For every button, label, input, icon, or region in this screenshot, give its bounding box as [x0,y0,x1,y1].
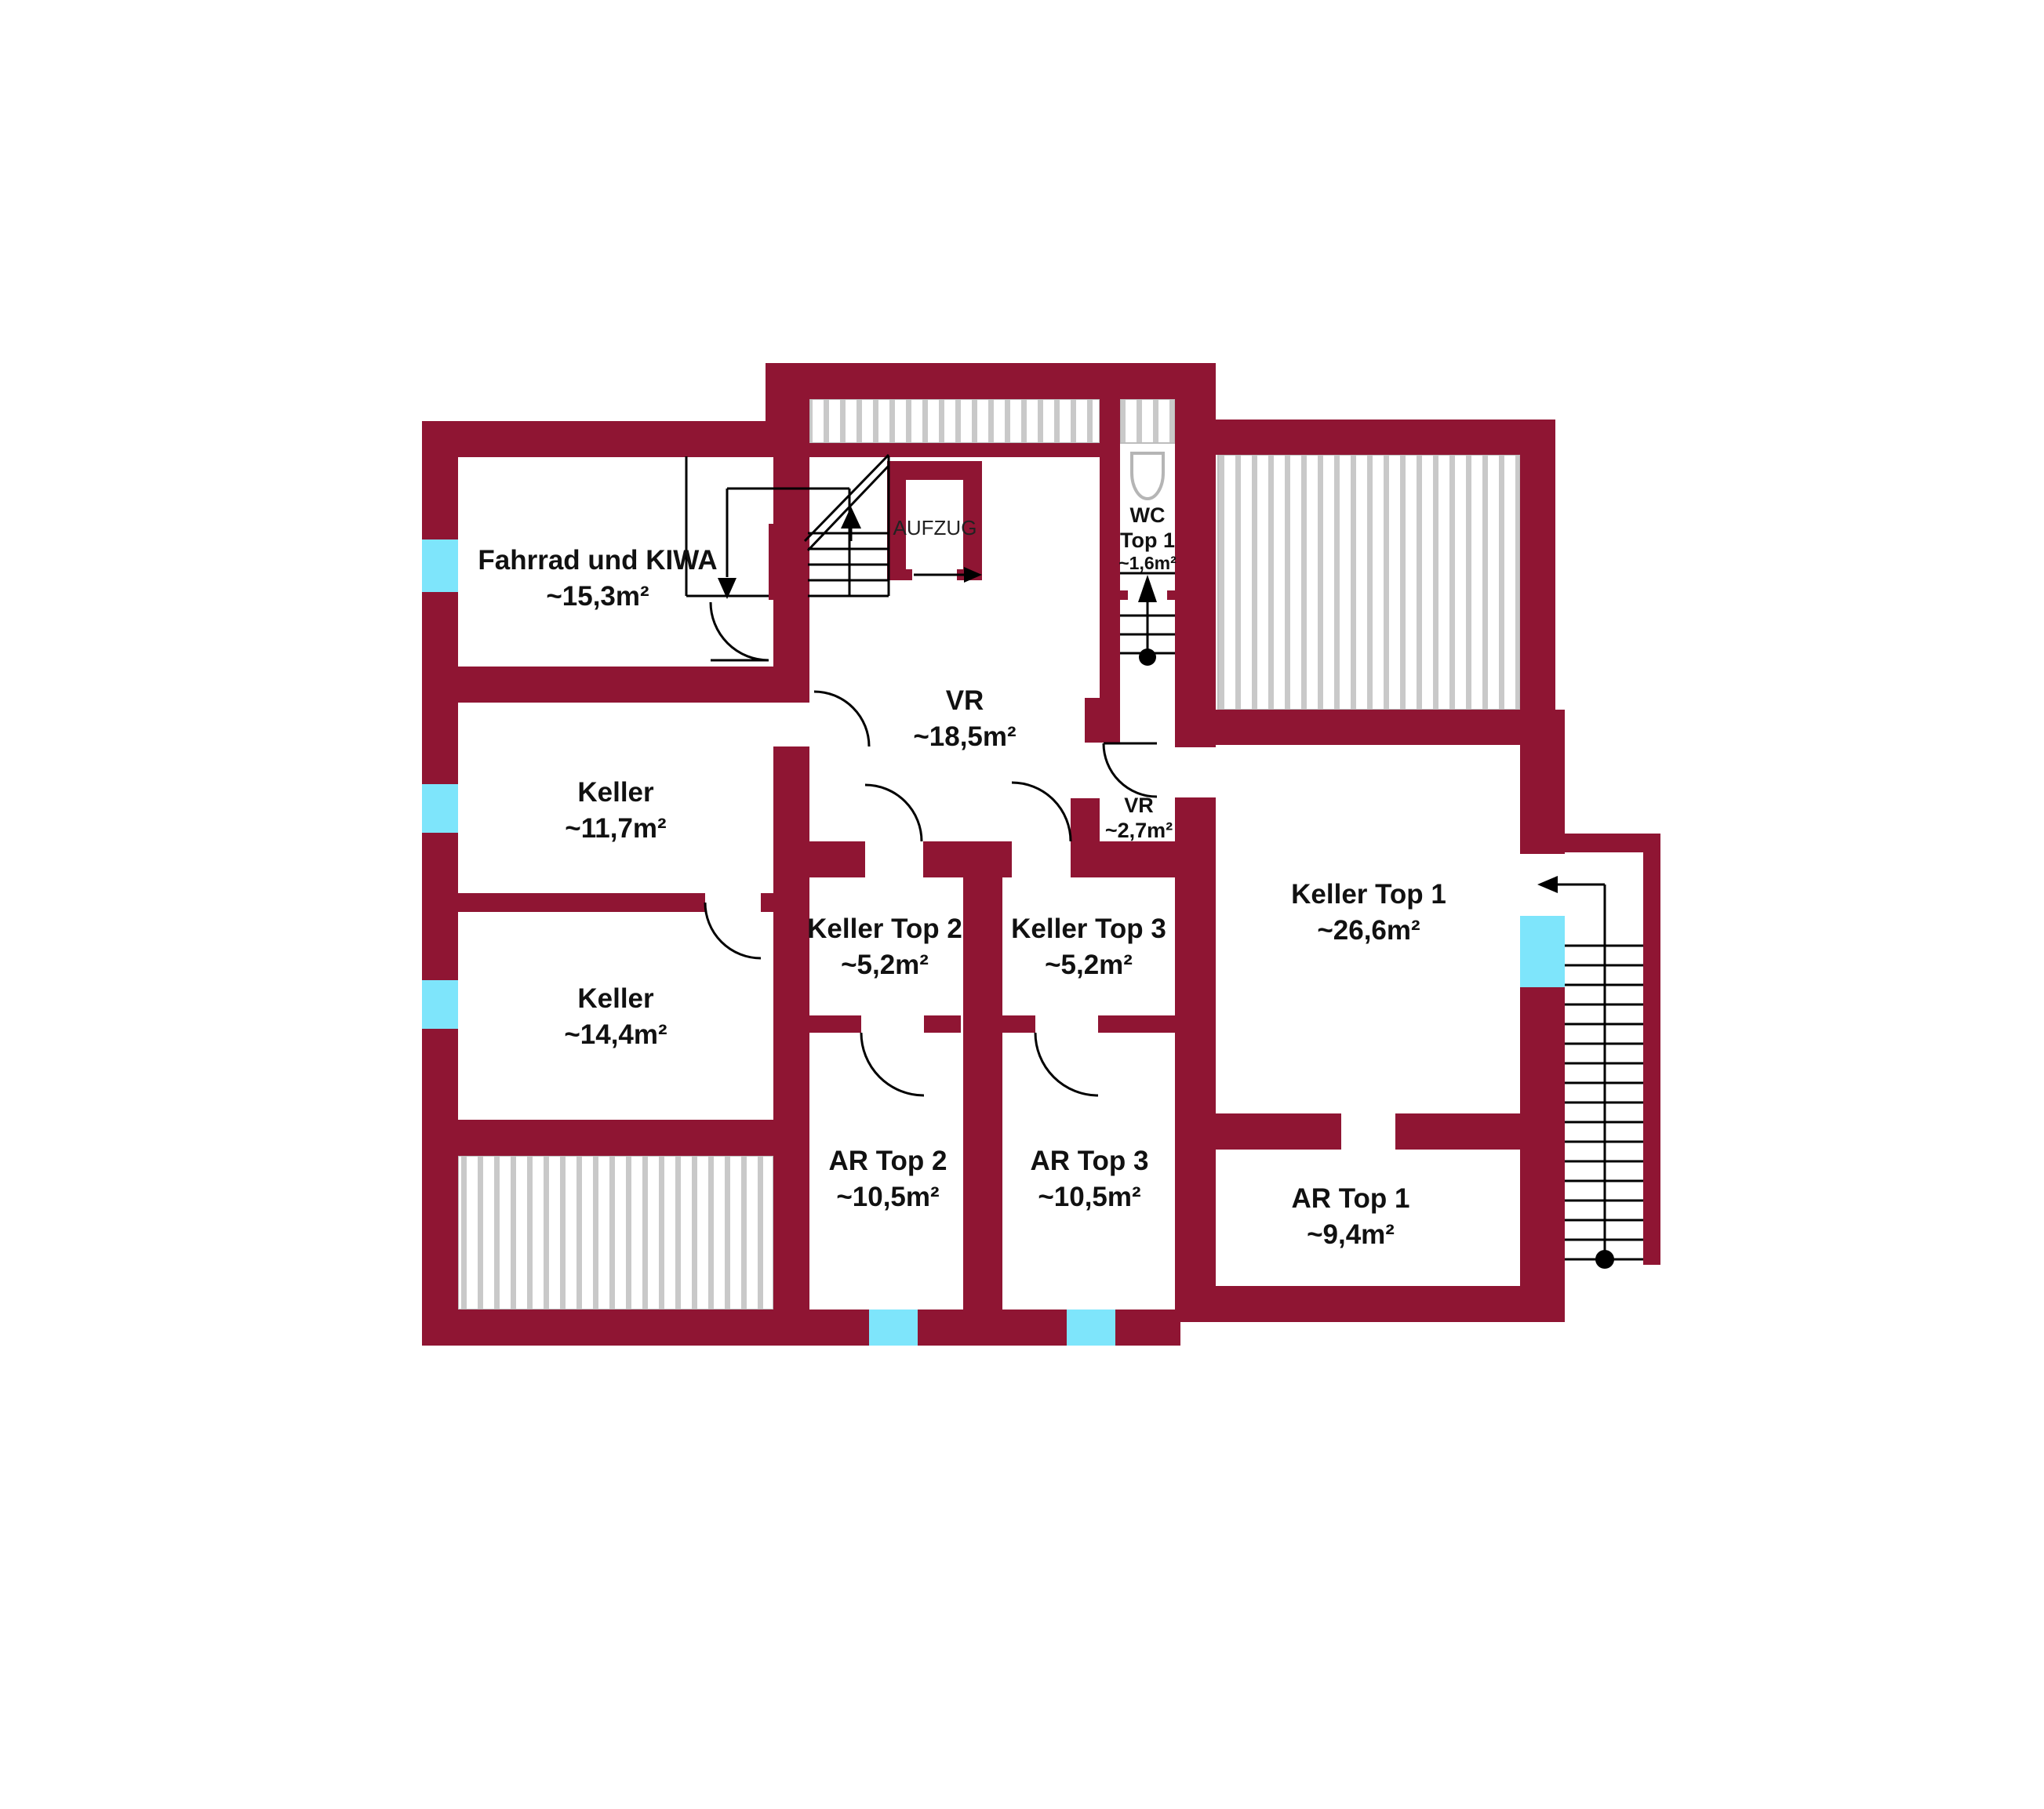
window [869,1310,918,1346]
wall-segment [1085,698,1120,743]
entry-arrow [1537,876,1558,893]
room-area-ar-top2: ~10,5m² [836,1182,939,1212]
room-area-ar-top1: ~9,4m² [1307,1219,1395,1250]
exterior-stair-wall [1565,834,1660,852]
room-area-keller-top2: ~5,2m² [841,950,929,980]
hatch-area-top-band [809,399,1100,443]
toilet-icon [1132,453,1163,499]
room-label-keller-top3: Keller Top 3 [1011,914,1166,944]
wall-segment [1071,841,1177,877]
wall-segment [1100,399,1120,698]
wall-segment [1395,1113,1520,1150]
window [1520,916,1565,987]
wall-segment [773,746,809,1310]
wall-segment [1167,590,1175,600]
stair-core-wall [769,524,808,600]
room-area-fahrrad: ~15,3m² [546,581,649,612]
room-label-fahrrad: Fahrrad und KIWA [478,545,717,576]
wall-segment [809,443,1100,457]
wall-segment [924,1015,961,1033]
room-label-vr-klein: VR [1124,794,1154,817]
elevator-shaft-wall [887,569,912,580]
wall-segment [1216,420,1555,455]
window [422,784,458,833]
wall-segment [458,893,705,912]
hatch-area-wc-band [1120,399,1175,443]
wall-segment [458,667,809,703]
room-label-keller-top2: Keller Top 2 [807,914,962,944]
room-area-keller-b: ~14,4m² [564,1019,667,1050]
wall-segment [1120,590,1128,600]
room-label-keller-top1: Keller Top 1 [1291,879,1446,910]
wall-segment [963,841,1002,1346]
door-arc [711,602,769,660]
door-arc [861,1033,924,1095]
wall-segment [809,841,865,877]
door-arc [705,903,761,958]
stair-up-arrow [841,507,861,529]
wall-segment [1002,1015,1035,1033]
wall-segment [1098,1015,1177,1033]
basement-floorplan: Fahrrad und KIWA ~15,3m² Keller ~11,7m² … [0,0,2044,1809]
door-arc [1035,1033,1098,1095]
wall-segment [1175,399,1216,747]
stair-up-arrow [1138,575,1157,602]
wall-segment [1071,798,1100,841]
hatch-area-bottom-left [458,1156,773,1310]
room-area-keller-top1: ~26,6m² [1317,915,1420,946]
door-arc [1012,783,1071,841]
stair-start-dot [1595,1250,1614,1269]
room-label-ar-top2: AR Top 2 [828,1146,947,1176]
wall-segment [1115,1310,1180,1346]
elevator-label: AUFZUG [893,516,977,539]
wall-segment [1177,1286,1565,1322]
room-label-wc: WC [1130,503,1166,527]
wall-segment [1175,797,1216,1322]
room-area-ar-top3: ~10,5m² [1038,1182,1140,1212]
window [1067,1310,1115,1346]
wall-segment [1216,710,1565,745]
door-arc [865,785,922,841]
wall-segment [422,421,809,457]
room-area-keller-a: ~11,7m² [565,813,666,844]
room-label-keller-b: Keller [577,983,654,1014]
wall-segment [1520,710,1565,854]
door-arc [814,692,869,746]
room-label-wc-line2: Top 1 [1120,529,1175,552]
room-area-vr-klein: ~2,7m² [1105,819,1173,842]
room-area-wc: ~1,6m² [1118,553,1177,573]
window [422,980,458,1029]
room-label-vr: VR [946,685,984,716]
wall-segment [809,1015,861,1033]
wall-segment [766,399,809,457]
room-label-keller-a: Keller [577,777,654,808]
door-arc [1104,743,1157,797]
hatch-area-top-right [1218,455,1520,710]
wall-segment [1520,987,1565,1322]
exterior-stair-wall [1643,852,1660,1265]
elevator-shaft-wall [887,461,982,480]
wall-segment [1520,420,1555,710]
wall-segment [766,363,1216,399]
room-label-ar-top1: AR Top 1 [1291,1183,1409,1214]
room-label-ar-top3: AR Top 3 [1030,1146,1148,1176]
room-area-keller-top3: ~5,2m² [1045,950,1133,980]
wall-segment [422,1310,869,1346]
window [422,539,458,592]
wall-segment [1216,1113,1341,1150]
wc-stair [1120,573,1175,666]
wall-segment [458,1120,809,1156]
floorplan-page: Fahrrad und KIWA ~15,3m² Keller ~11,7m² … [0,0,2044,1809]
room-area-vr: ~18,5m² [913,721,1016,752]
stair-start-dot [1139,648,1156,666]
